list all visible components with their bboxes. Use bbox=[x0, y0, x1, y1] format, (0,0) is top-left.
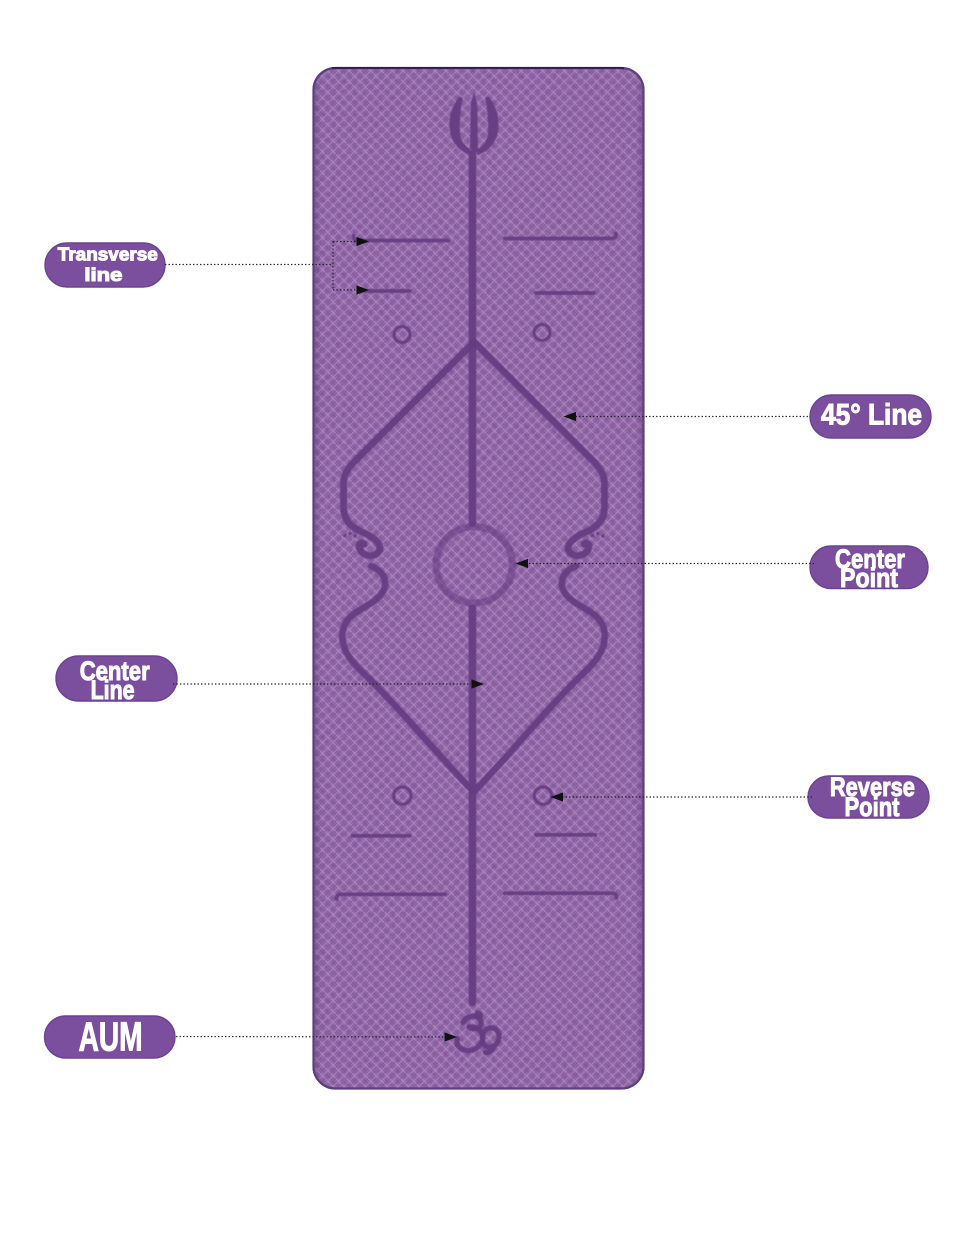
svg-text:Point: Point bbox=[845, 792, 900, 822]
svg-text:Transverse: Transverse bbox=[58, 244, 158, 265]
svg-text:AUM: AUM bbox=[79, 1014, 143, 1060]
svg-text:45° Line: 45° Line bbox=[821, 399, 922, 432]
svg-text:line: line bbox=[84, 264, 122, 285]
svg-text:Point: Point bbox=[840, 563, 898, 593]
svg-text:Line: Line bbox=[91, 675, 135, 705]
